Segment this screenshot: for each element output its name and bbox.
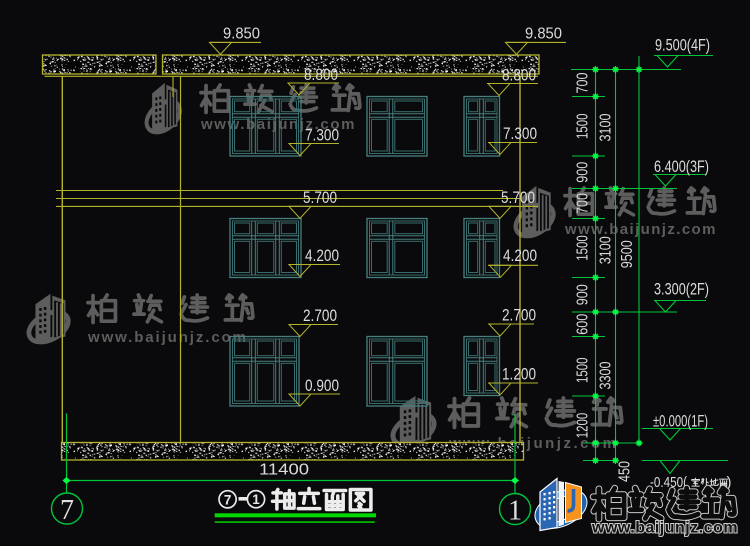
svg-text:5.700: 5.700 [303, 188, 337, 207]
svg-text:5.700: 5.700 [501, 188, 535, 207]
svg-text:11400: 11400 [259, 462, 309, 479]
svg-text:3100: 3100 [598, 113, 615, 141]
svg-text:0.900: 0.900 [305, 376, 339, 395]
svg-text:1500: 1500 [575, 357, 592, 383]
svg-text:7.300: 7.300 [305, 126, 339, 145]
svg-text:1: 1 [252, 492, 260, 507]
svg-text:7: 7 [224, 492, 232, 507]
svg-text:6.400(3F): 6.400(3F) [654, 157, 709, 176]
svg-text:9.850: 9.850 [525, 26, 562, 43]
svg-text:700: 700 [575, 193, 592, 214]
svg-text:3.300(2F): 3.300(2F) [654, 280, 709, 299]
svg-text:600: 600 [575, 313, 592, 334]
svg-text:8.800: 8.800 [304, 65, 338, 84]
svg-text:7.300: 7.300 [503, 124, 537, 143]
svg-text:1500: 1500 [575, 113, 592, 139]
svg-text:3300: 3300 [598, 361, 615, 389]
svg-text:1500: 1500 [575, 235, 592, 261]
svg-text:900: 900 [575, 161, 592, 182]
svg-text:450: 450 [617, 461, 634, 482]
svg-text:7: 7 [60, 495, 74, 526]
svg-text:1.200: 1.200 [502, 365, 536, 384]
svg-text:4.200: 4.200 [503, 246, 537, 265]
svg-text:900: 900 [575, 284, 592, 305]
svg-text:±0.000(1F): ±0.000(1F) [653, 412, 708, 431]
svg-text:1200: 1200 [575, 412, 592, 438]
svg-text:9.850: 9.850 [223, 26, 260, 43]
svg-text:700: 700 [575, 72, 592, 93]
svg-text:9.500(4F): 9.500(4F) [655, 36, 710, 55]
svg-text:2.700: 2.700 [502, 306, 536, 325]
svg-text:8.800: 8.800 [502, 66, 536, 85]
svg-text:www.baijunjz.com: www.baijunjz.com [87, 329, 248, 346]
svg-text:4.200: 4.200 [305, 246, 339, 265]
svg-text:1: 1 [508, 496, 522, 527]
svg-text:3100: 3100 [598, 236, 615, 264]
svg-text:2.700: 2.700 [303, 306, 337, 325]
svg-text:www.baijunjz.com: www.baijunjz.com [591, 520, 738, 537]
svg-text:9500: 9500 [619, 240, 636, 268]
